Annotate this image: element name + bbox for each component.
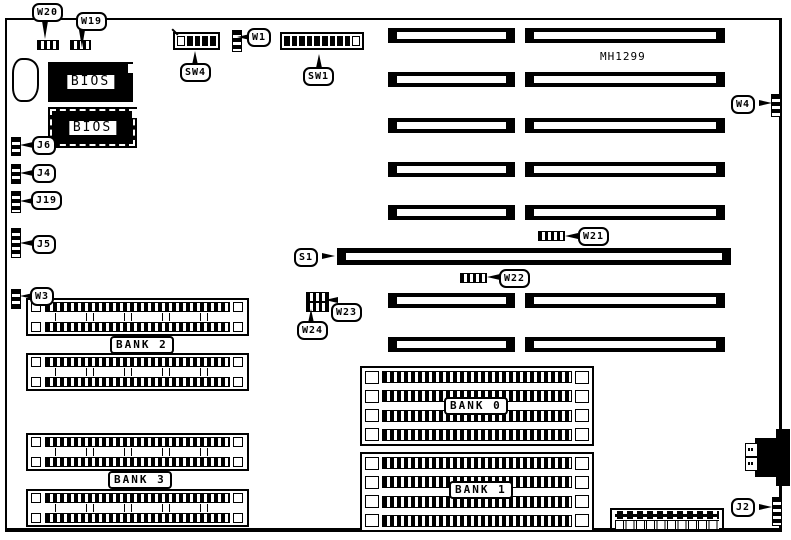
callout-j4: J4 <box>32 164 56 183</box>
power-pins <box>615 511 719 519</box>
simm-socket <box>365 428 589 442</box>
isa-slot-segment <box>525 337 725 352</box>
callout-s1: S1 <box>294 248 318 267</box>
isa-slot-segment <box>525 293 725 308</box>
callout-j19: J19 <box>31 191 62 210</box>
callout-sw4: SW4 <box>180 63 211 82</box>
aux-connector <box>745 457 758 471</box>
pin-comb <box>382 429 572 441</box>
switch-position <box>322 36 328 46</box>
simm-socket-bank2-1 <box>26 298 249 336</box>
isa-slot-segment <box>388 72 515 87</box>
callout-w24: W24 <box>297 321 328 340</box>
label-bank0: BANK 0 <box>444 397 508 415</box>
isa-slot-segment <box>388 28 515 43</box>
isa-slot-segment <box>388 162 515 177</box>
dip-switch-sw1 <box>280 32 364 50</box>
label-bank1: BANK 1 <box>449 481 513 499</box>
callout-tail <box>565 233 578 239</box>
dram-chips <box>55 368 220 376</box>
label-bank2: BANK 2 <box>110 336 174 354</box>
slot-s1 <box>337 248 731 265</box>
jumper-w3 <box>11 289 21 309</box>
bios-chip-label: BIOS <box>69 121 116 135</box>
callout-w4: W4 <box>731 95 755 114</box>
simm-socket <box>365 456 589 470</box>
switch-position <box>352 36 360 46</box>
switch-position <box>284 36 290 46</box>
retention-clip <box>575 514 589 527</box>
switch-position <box>307 36 313 46</box>
callout-w1: W1 <box>247 28 271 47</box>
simm-socket <box>365 370 589 384</box>
switch-position <box>195 36 201 46</box>
retention-clip <box>30 302 43 332</box>
switch-position <box>210 36 216 46</box>
pin-comb <box>382 515 572 527</box>
retention-clip <box>365 428 379 441</box>
callout-tail <box>322 253 335 259</box>
motherboard-diagram: W20 W19 BIOS BIOS SW4 W1 SW1 MH1299 <box>0 0 791 540</box>
connector-j2 <box>772 497 782 526</box>
pin-comb <box>45 493 230 503</box>
retention-clip <box>575 476 589 489</box>
simm-socket-bank2-2 <box>26 353 249 391</box>
callout-w3: W3 <box>30 287 54 306</box>
retention-clip <box>30 357 43 387</box>
switch-position <box>314 36 320 46</box>
label-bank3: BANK 3 <box>108 471 172 489</box>
simm-socket <box>365 514 589 528</box>
chip-notch <box>128 64 134 73</box>
jumper-w22 <box>460 273 487 283</box>
bios-chip-1: BIOS <box>48 62 133 102</box>
isa-slot-segment <box>388 118 515 133</box>
isa-slot-segment <box>525 205 725 220</box>
simm-socket-bank3-1 <box>26 433 249 471</box>
pin-comb <box>45 302 230 312</box>
switch-position <box>202 36 208 46</box>
retention-clip <box>365 390 379 403</box>
dram-chips <box>55 448 220 456</box>
retention-clip <box>575 390 589 403</box>
retention-clip <box>575 428 589 441</box>
isa-slot-segment <box>525 72 725 87</box>
retention-clip <box>365 457 379 470</box>
pin-comb <box>45 357 230 367</box>
isa-slot-segment <box>388 337 515 352</box>
aux-connector <box>745 443 758 457</box>
retention-clip <box>575 457 589 470</box>
switch-position <box>337 36 343 46</box>
retention-clip <box>575 495 589 508</box>
power-pin-cells <box>615 520 719 529</box>
pin-comb <box>45 437 230 447</box>
callout-j2: J2 <box>731 498 755 517</box>
callout-w22: W22 <box>499 269 530 288</box>
callout-tail <box>759 100 772 106</box>
retention-clip <box>30 437 43 467</box>
pin-comb <box>45 457 230 467</box>
callout-sw1: SW1 <box>303 67 334 86</box>
isa-slot-segment <box>525 28 725 43</box>
power-connector <box>610 508 724 530</box>
callout-w20: W20 <box>32 3 63 22</box>
board-model-text: MH1299 <box>600 50 646 63</box>
retention-clip <box>365 495 379 508</box>
pin-comb <box>45 377 230 387</box>
retention-clip <box>232 302 245 332</box>
retention-clip <box>575 409 589 422</box>
callout-w19: W19 <box>76 12 107 31</box>
pin-comb <box>382 457 572 469</box>
switch-position <box>345 36 351 46</box>
mounting-hole <box>12 58 39 102</box>
callout-tail <box>316 54 322 68</box>
isa-slot-segment <box>388 293 515 308</box>
jumper-w4 <box>771 94 781 117</box>
retention-clip <box>575 371 589 384</box>
retention-clip <box>365 371 379 384</box>
chip-notch <box>132 109 138 118</box>
jumper-w21 <box>538 231 565 241</box>
callout-w21: W21 <box>578 227 609 246</box>
retention-clip <box>232 493 245 523</box>
callout-tail <box>759 504 772 510</box>
callout-j6: J6 <box>32 136 56 155</box>
simm-socket-bank3-2 <box>26 489 249 527</box>
dip-switch-sw4 <box>173 32 220 50</box>
retention-clip <box>232 357 245 387</box>
jumper-w20 <box>37 40 59 50</box>
switch-position <box>299 36 305 46</box>
callout-tail <box>42 21 48 39</box>
retention-clip <box>365 476 379 489</box>
retention-clip <box>365 514 379 527</box>
switch-position <box>330 36 336 46</box>
pin-comb <box>45 322 230 332</box>
pin-comb <box>382 371 572 383</box>
retention-clip <box>30 493 43 523</box>
callout-j5: J5 <box>32 235 56 254</box>
retention-clip <box>365 409 379 422</box>
switch-position <box>187 36 193 46</box>
dram-chips <box>55 504 220 512</box>
switch-position <box>292 36 298 46</box>
isa-slot-segment <box>525 162 725 177</box>
retention-clip <box>232 437 245 467</box>
isa-slot-segment <box>525 118 725 133</box>
bios-chip-2: BIOS <box>48 107 137 148</box>
pin-comb <box>45 513 230 523</box>
callout-tail <box>79 30 85 48</box>
callout-w23: W23 <box>331 303 362 322</box>
dram-chips <box>55 313 220 321</box>
switch-position <box>177 36 185 46</box>
isa-slot-segment <box>388 205 515 220</box>
bios-chip-label: BIOS <box>67 75 114 89</box>
keyboard-connector-body <box>776 429 790 486</box>
